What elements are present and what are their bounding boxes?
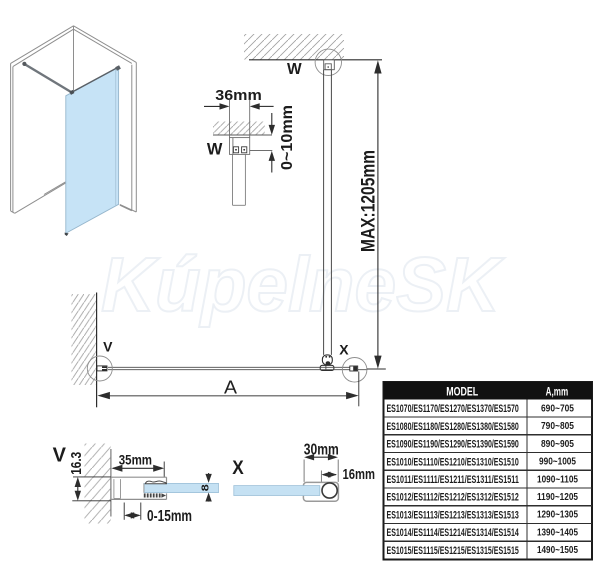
svg-text:ES1010/ES1110/ES1210/ES1310/ES: ES1010/ES1110/ES1210/ES1310/ES1510 (387, 456, 519, 468)
svg-text:0-15mm: 0-15mm (147, 508, 192, 525)
svg-text:ES1015/ES1115/ES1215/ES1315/ES: ES1015/ES1115/ES1215/ES1315/ES1515 (387, 545, 519, 557)
svg-text:990~1005: 990~1005 (539, 457, 576, 468)
svg-text:ES1080/ES1180/ES1280/ES1380/ES: ES1080/ES1180/ES1280/ES1380/ES1580 (387, 421, 519, 433)
svg-text:MAX:1205mm: MAX:1205mm (358, 150, 379, 252)
svg-text:36mm: 36mm (215, 87, 262, 104)
svg-text:690~705: 690~705 (541, 403, 574, 414)
svg-text:16mm: 16mm (343, 466, 376, 483)
svg-text:V: V (103, 338, 113, 354)
svg-text:A,mm: A,mm (546, 387, 569, 399)
svg-text:16.3: 16.3 (68, 452, 85, 475)
svg-text:1290~1305: 1290~1305 (537, 510, 578, 521)
svg-text:X: X (232, 458, 244, 479)
svg-text:790~805: 790~805 (541, 421, 574, 432)
svg-text:W: W (207, 140, 223, 159)
svg-text:0~10mm: 0~10mm (279, 105, 296, 170)
svg-text:A: A (224, 377, 237, 397)
svg-text:ES1090/ES1190/ES1290/ES1390/ES: ES1090/ES1190/ES1290/ES1390/ES1590 (387, 439, 519, 451)
svg-text:ES1014/ES1114/ES1214/ES1314/ES: ES1014/ES1114/ES1214/ES1314/ES1514 (387, 527, 520, 539)
svg-text:ES1013/ES1113/ES1213/ES1313/ES: ES1013/ES1113/ES1213/ES1313/ES1513 (387, 509, 519, 521)
svg-text:X: X (339, 342, 349, 358)
svg-text:MODEL: MODEL (446, 385, 478, 399)
svg-text:KúpelneSK: KúpelneSK (101, 242, 505, 328)
svg-text:W: W (287, 61, 302, 78)
svg-text:ES1011/ES1111/ES1211/ES1311/ES: ES1011/ES1111/ES1211/ES1311/ES1511 (387, 474, 519, 486)
svg-text:1490~1505: 1490~1505 (537, 545, 578, 556)
svg-text:35mm: 35mm (119, 451, 152, 467)
svg-text:1090~1105: 1090~1105 (537, 474, 578, 485)
svg-text:8: 8 (200, 484, 212, 491)
svg-text:ES1070/ES1170/ES1270/ES1370/ES: ES1070/ES1170/ES1270/ES1370/ES1570 (387, 403, 519, 415)
svg-text:V: V (53, 445, 67, 467)
svg-text:ES1012/ES1112/ES1212/ES1312/ES: ES1012/ES1112/ES1212/ES1312/ES1512 (387, 492, 519, 504)
svg-text:1190~1205: 1190~1205 (537, 492, 578, 503)
svg-text:890~905: 890~905 (541, 439, 574, 450)
svg-text:1390~1405: 1390~1405 (537, 528, 578, 539)
